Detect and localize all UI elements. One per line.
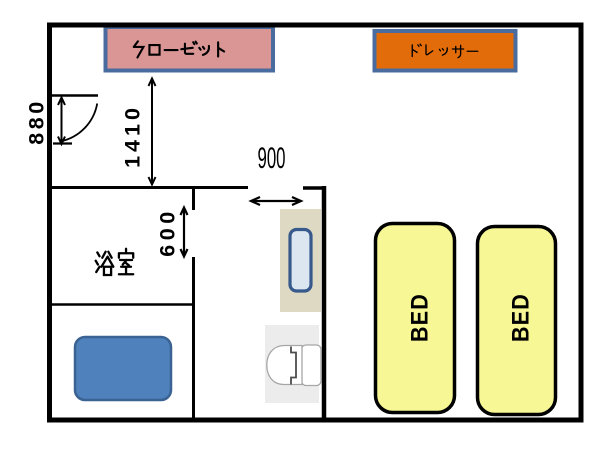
svg-text:1410: 1410 [121, 104, 145, 168]
svg-text:600: 600 [156, 207, 180, 256]
svg-text:BED: BED [508, 293, 534, 342]
svg-text:880: 880 [25, 98, 49, 144]
svg-text:900: 900 [257, 142, 285, 175]
svg-text:BED: BED [407, 293, 433, 342]
